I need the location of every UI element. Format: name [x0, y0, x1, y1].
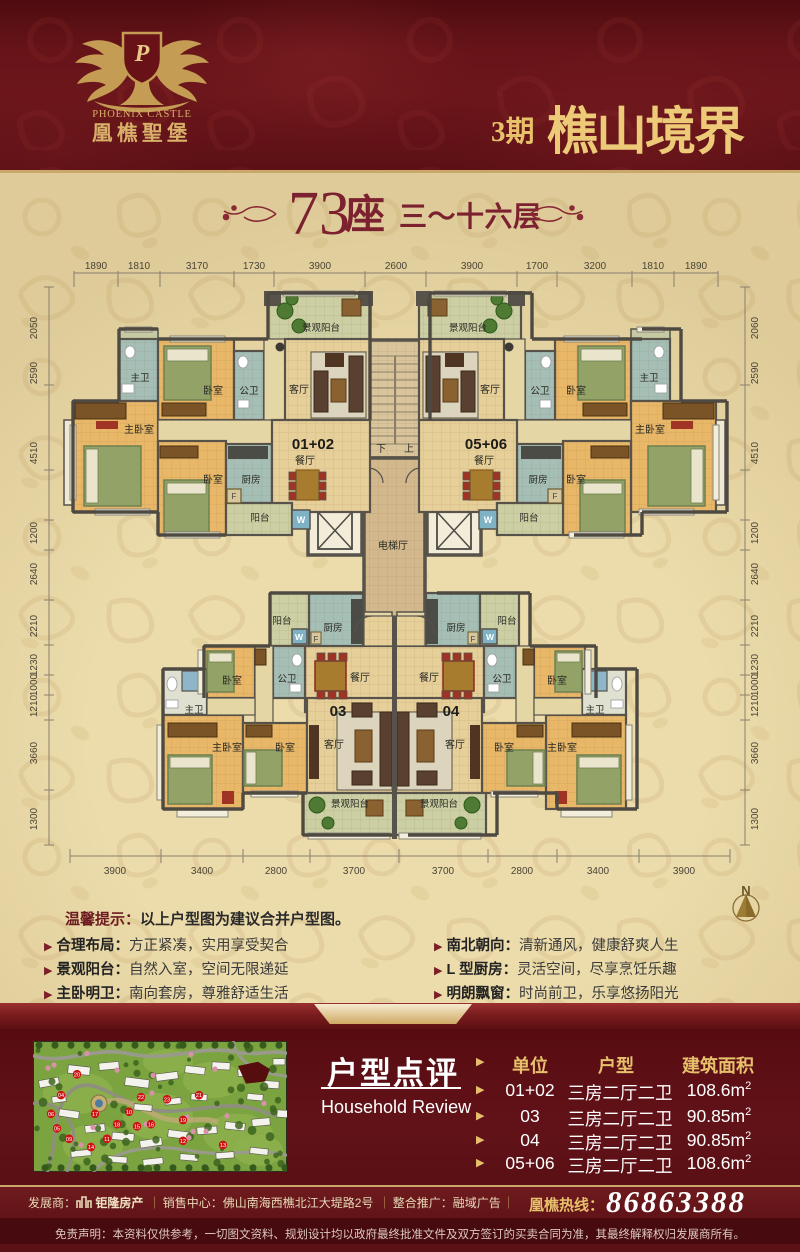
svg-text:厨房: 厨房 [528, 474, 547, 486]
svg-text:23: 23 [164, 1097, 170, 1103]
svg-text:3900: 3900 [104, 866, 127, 877]
svg-text:卧室: 卧室 [203, 473, 223, 486]
svg-text:2590: 2590 [750, 361, 761, 384]
svg-text:厨房: 厨房 [446, 622, 465, 634]
svg-text:1000: 1000 [750, 673, 761, 696]
svg-text:景观阳台: 景观阳台 [449, 322, 487, 334]
svg-text:主卧室: 主卧室 [124, 423, 154, 436]
svg-text:1810: 1810 [642, 261, 665, 272]
svg-text:主卧室: 主卧室 [212, 741, 242, 754]
svg-text:3700: 3700 [432, 866, 455, 877]
svg-text:餐厅: 餐厅 [474, 454, 494, 467]
svg-text:阳台: 阳台 [497, 615, 516, 627]
svg-text:1230: 1230 [750, 653, 761, 676]
svg-text:景观阳台: 景观阳台 [331, 798, 369, 810]
svg-text:1700: 1700 [526, 261, 549, 272]
svg-text:14: 14 [88, 1145, 94, 1151]
svg-text:1200: 1200 [29, 521, 40, 544]
svg-text:3400: 3400 [191, 866, 214, 877]
svg-text:3900: 3900 [673, 866, 696, 877]
svg-text:公卫: 公卫 [277, 674, 297, 685]
svg-text:2210: 2210 [29, 614, 40, 637]
svg-text:F: F [232, 492, 237, 501]
svg-text:05: 05 [54, 1126, 60, 1132]
svg-text:客厅: 客厅 [324, 738, 344, 751]
svg-text:3700: 3700 [343, 866, 366, 877]
svg-text:上: 上 [404, 443, 414, 455]
svg-text:1890: 1890 [85, 261, 108, 272]
svg-text:1000: 1000 [29, 673, 40, 696]
svg-text:卧室: 卧室 [222, 674, 242, 687]
svg-text:2640: 2640 [29, 562, 40, 585]
svg-text:3900: 3900 [461, 261, 484, 272]
svg-text:13: 13 [220, 1143, 226, 1149]
svg-text:W: W [297, 515, 306, 525]
svg-text:餐厅: 餐厅 [419, 671, 439, 684]
svg-text:06: 06 [48, 1112, 54, 1118]
svg-text:2800: 2800 [511, 866, 534, 877]
svg-text:卧室: 卧室 [203, 384, 223, 397]
svg-text:3660: 3660 [750, 741, 761, 764]
svg-text:客厅: 客厅 [480, 383, 500, 396]
svg-text:W: W [484, 515, 493, 525]
svg-text:客厅: 客厅 [289, 383, 309, 396]
svg-text:F: F [314, 635, 319, 644]
svg-text:1730: 1730 [243, 261, 266, 272]
svg-text:11: 11 [104, 1137, 110, 1143]
svg-text:15: 15 [134, 1124, 140, 1130]
svg-text:阳台: 阳台 [272, 615, 291, 627]
svg-text:电梯厅: 电梯厅 [378, 539, 408, 552]
svg-text:客厅: 客厅 [445, 738, 465, 751]
svg-text:主卫: 主卫 [585, 704, 605, 716]
svg-text:主卫: 主卫 [639, 372, 659, 384]
svg-text:P: P [134, 41, 150, 67]
svg-text:主卫: 主卫 [130, 372, 150, 384]
svg-text:F: F [553, 492, 558, 501]
svg-text:凰樵聖堡: 凰樵聖堡 [92, 121, 192, 145]
svg-text:公卫: 公卫 [492, 674, 512, 685]
svg-text:卧室: 卧室 [566, 473, 586, 486]
svg-text:18: 18 [114, 1122, 120, 1128]
svg-text:景观阳台: 景观阳台 [420, 798, 458, 810]
svg-text:公卫: 公卫 [530, 386, 550, 397]
svg-text:20: 20 [74, 1072, 80, 1078]
svg-text:1200: 1200 [750, 521, 761, 544]
svg-text:餐厅: 餐厅 [295, 454, 315, 467]
svg-text:厨房: 厨房 [323, 622, 342, 634]
svg-text:04: 04 [58, 1093, 64, 1099]
svg-text:2590: 2590 [29, 361, 40, 384]
svg-text:19: 19 [180, 1118, 186, 1124]
svg-text:3200: 3200 [584, 261, 607, 272]
svg-text:12: 12 [180, 1139, 186, 1145]
svg-text:主卧室: 主卧室 [547, 741, 577, 754]
svg-text:10: 10 [126, 1110, 132, 1116]
svg-text:4510: 4510 [750, 441, 761, 464]
svg-text:2210: 2210 [750, 614, 761, 637]
svg-text:01+02: 01+02 [292, 436, 334, 453]
svg-text:2050: 2050 [29, 316, 40, 339]
svg-text:22: 22 [138, 1095, 144, 1101]
svg-text:主卧室: 主卧室 [635, 423, 665, 436]
svg-text:4510: 4510 [29, 441, 40, 464]
svg-text:主卫: 主卫 [184, 704, 204, 716]
svg-text:3660: 3660 [29, 741, 40, 764]
svg-text:09: 09 [66, 1137, 72, 1143]
svg-text:卧室: 卧室 [547, 674, 567, 687]
svg-text:2060: 2060 [750, 316, 761, 339]
svg-text:1210: 1210 [29, 694, 40, 717]
svg-text:2600: 2600 [385, 261, 408, 272]
svg-text:21: 21 [196, 1093, 202, 1099]
svg-text:3400: 3400 [587, 866, 610, 877]
svg-text:2800: 2800 [265, 866, 288, 877]
svg-text:W: W [295, 632, 304, 642]
svg-text:03: 03 [330, 703, 347, 720]
svg-text:阳台: 阳台 [519, 512, 538, 524]
svg-text:17: 17 [92, 1112, 98, 1118]
svg-text:PHOENIX CASTLE: PHOENIX CASTLE [92, 109, 192, 120]
svg-text:F: F [471, 635, 476, 644]
svg-text:16: 16 [148, 1122, 154, 1128]
svg-text:1810: 1810 [128, 261, 151, 272]
svg-text:2640: 2640 [750, 562, 761, 585]
svg-text:1210: 1210 [750, 694, 761, 717]
svg-text:W: W [486, 632, 495, 642]
svg-text:卧室: 卧室 [275, 741, 295, 754]
svg-text:04: 04 [443, 703, 460, 720]
svg-text:下: 下 [376, 444, 386, 455]
svg-text:厨房: 厨房 [241, 474, 260, 486]
svg-text:卧室: 卧室 [566, 384, 586, 397]
svg-text:餐厅: 餐厅 [350, 671, 370, 684]
svg-text:卧室: 卧室 [494, 741, 514, 754]
svg-text:05+06: 05+06 [465, 436, 507, 453]
svg-text:景观阳台: 景观阳台 [302, 322, 340, 334]
svg-text:1300: 1300 [750, 807, 761, 830]
svg-text:3900: 3900 [309, 261, 332, 272]
svg-text:1230: 1230 [29, 653, 40, 676]
svg-text:公卫: 公卫 [239, 386, 259, 397]
svg-text:阳台: 阳台 [250, 512, 269, 524]
svg-text:3170: 3170 [186, 261, 209, 272]
svg-text:1300: 1300 [29, 807, 40, 830]
svg-text:1890: 1890 [685, 261, 708, 272]
